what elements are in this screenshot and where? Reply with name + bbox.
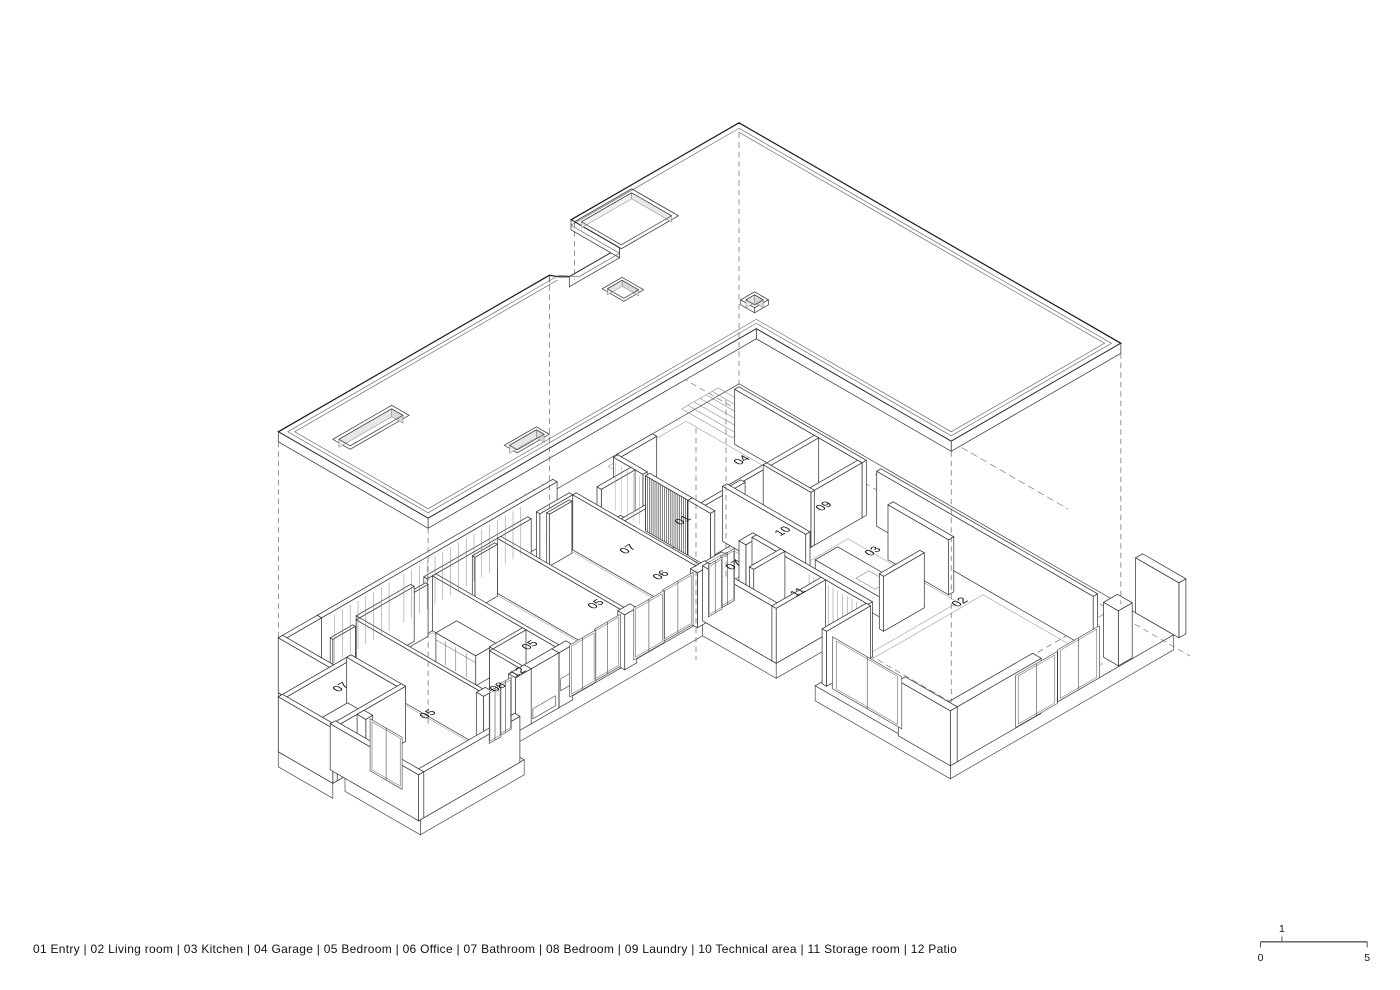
svg-text:0: 0 [1258, 952, 1264, 964]
svg-text:01 Entry | 02 Living room | 03: 01 Entry | 02 Living room | 03 Kitchen |… [33, 942, 957, 956]
svg-text:1: 1 [1279, 923, 1285, 935]
svg-text:5: 5 [1364, 952, 1370, 964]
